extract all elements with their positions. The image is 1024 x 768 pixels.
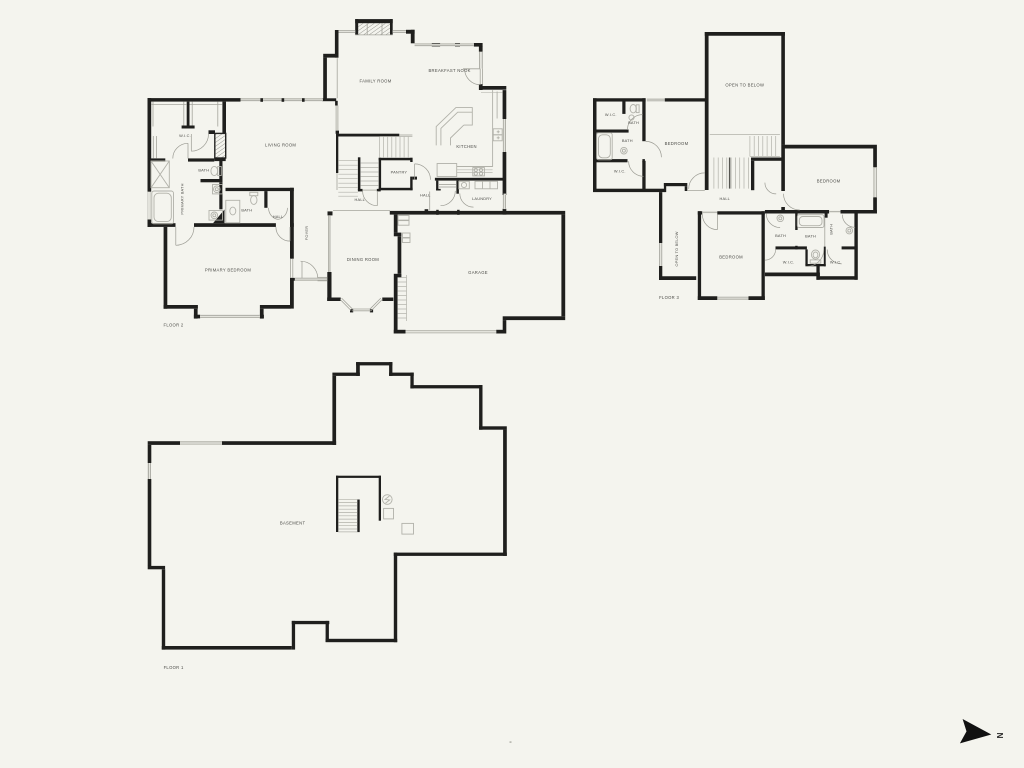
svg-text:W.I.C.: W.I.C. xyxy=(783,260,795,265)
svg-text:BATH: BATH xyxy=(775,233,786,238)
svg-text:BATH: BATH xyxy=(198,168,209,173)
svg-text:FAMILY ROOM: FAMILY ROOM xyxy=(360,79,392,84)
svg-text:BEDROOM: BEDROOM xyxy=(719,254,743,259)
svg-text:W.I.C.: W.I.C. xyxy=(605,112,617,117)
svg-text:PRIMARY BATH: PRIMARY BATH xyxy=(180,183,185,214)
svg-text:FOYER: FOYER xyxy=(304,226,309,240)
svg-text:BEDROOM: BEDROOM xyxy=(665,141,689,146)
svg-text:HALL: HALL xyxy=(420,193,431,198)
svg-text:BATH: BATH xyxy=(805,234,816,239)
svg-text:FLOOR 1: FLOOR 1 xyxy=(164,665,184,670)
svg-text:LAUNDRY: LAUNDRY xyxy=(472,196,492,201)
svg-text:PANTRY: PANTRY xyxy=(391,169,408,174)
svg-text:PRIMARY BEDROOM: PRIMARY BEDROOM xyxy=(205,267,251,272)
svg-text:N: N xyxy=(996,732,1005,738)
svg-text:HALL: HALL xyxy=(720,196,731,201)
svg-text:BATH: BATH xyxy=(241,208,252,213)
svg-text:FLOOR 3: FLOOR 3 xyxy=(659,295,679,300)
svg-text:BATH: BATH xyxy=(622,138,633,143)
svg-text:DINING ROOM: DINING ROOM xyxy=(347,257,379,262)
svg-text:FLOOR 2: FLOOR 2 xyxy=(163,323,183,328)
svg-text:KITCHEN: KITCHEN xyxy=(456,144,476,149)
svg-text:HALL: HALL xyxy=(355,197,366,202)
svg-text:BATH: BATH xyxy=(628,120,639,125)
svg-text:LIVING ROOM: LIVING ROOM xyxy=(265,143,296,148)
svg-text:W.I.C.: W.I.C. xyxy=(614,169,626,174)
svg-text:OPEN TO BELOW: OPEN TO BELOW xyxy=(725,83,764,88)
svg-text:HALL: HALL xyxy=(273,214,284,219)
svg-text:GARAGE: GARAGE xyxy=(468,270,488,275)
svg-text:BATH: BATH xyxy=(828,224,833,235)
svg-text:BREAKFAST NOOK: BREAKFAST NOOK xyxy=(428,68,470,73)
svg-text:W.I.C.: W.I.C. xyxy=(830,260,842,265)
svg-text:BASEMENT: BASEMENT xyxy=(280,521,306,526)
svg-text:W.I.C.: W.I.C. xyxy=(179,133,191,138)
svg-text:OPEN TO BELOW: OPEN TO BELOW xyxy=(674,231,679,266)
svg-text:BEDROOM: BEDROOM xyxy=(817,178,841,183)
